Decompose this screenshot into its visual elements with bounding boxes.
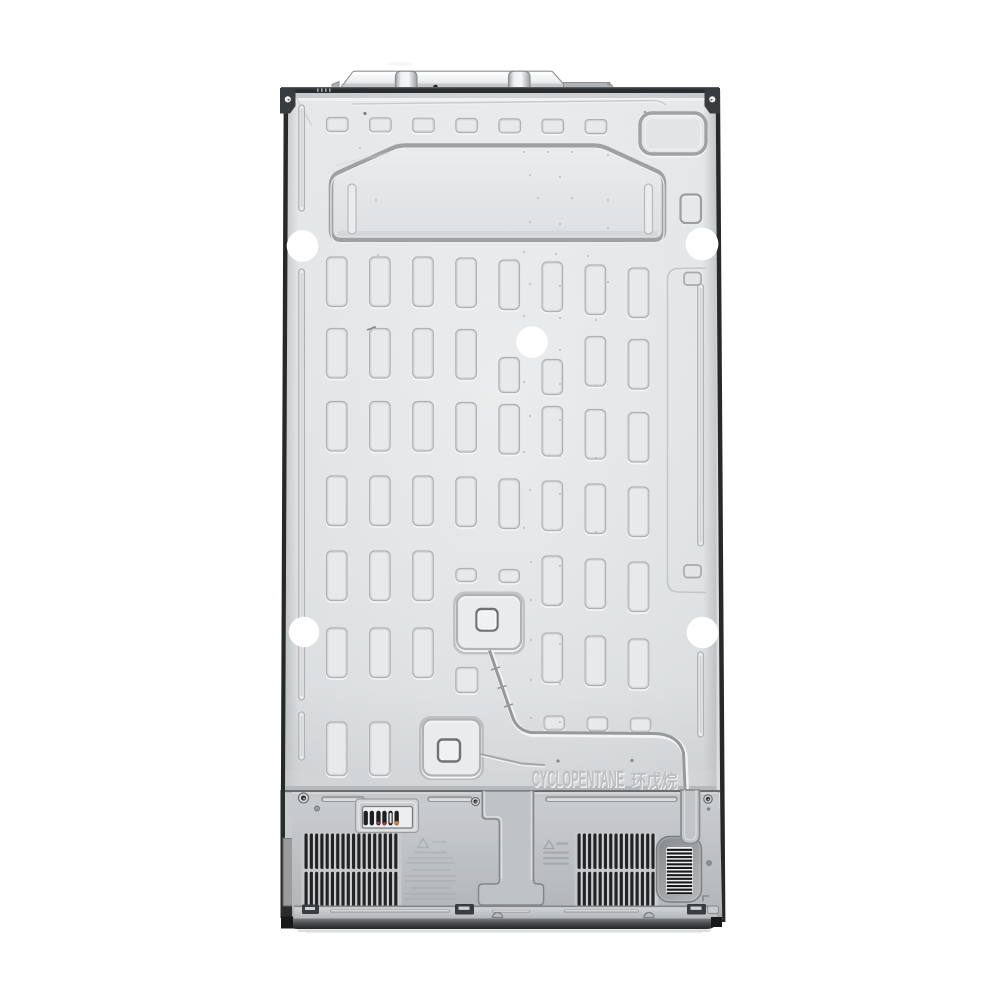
svg-text:环戊烷: 环戊烷	[631, 771, 678, 791]
svg-text:CYCLOPENTANE: CYCLOPENTANE	[532, 765, 624, 792]
